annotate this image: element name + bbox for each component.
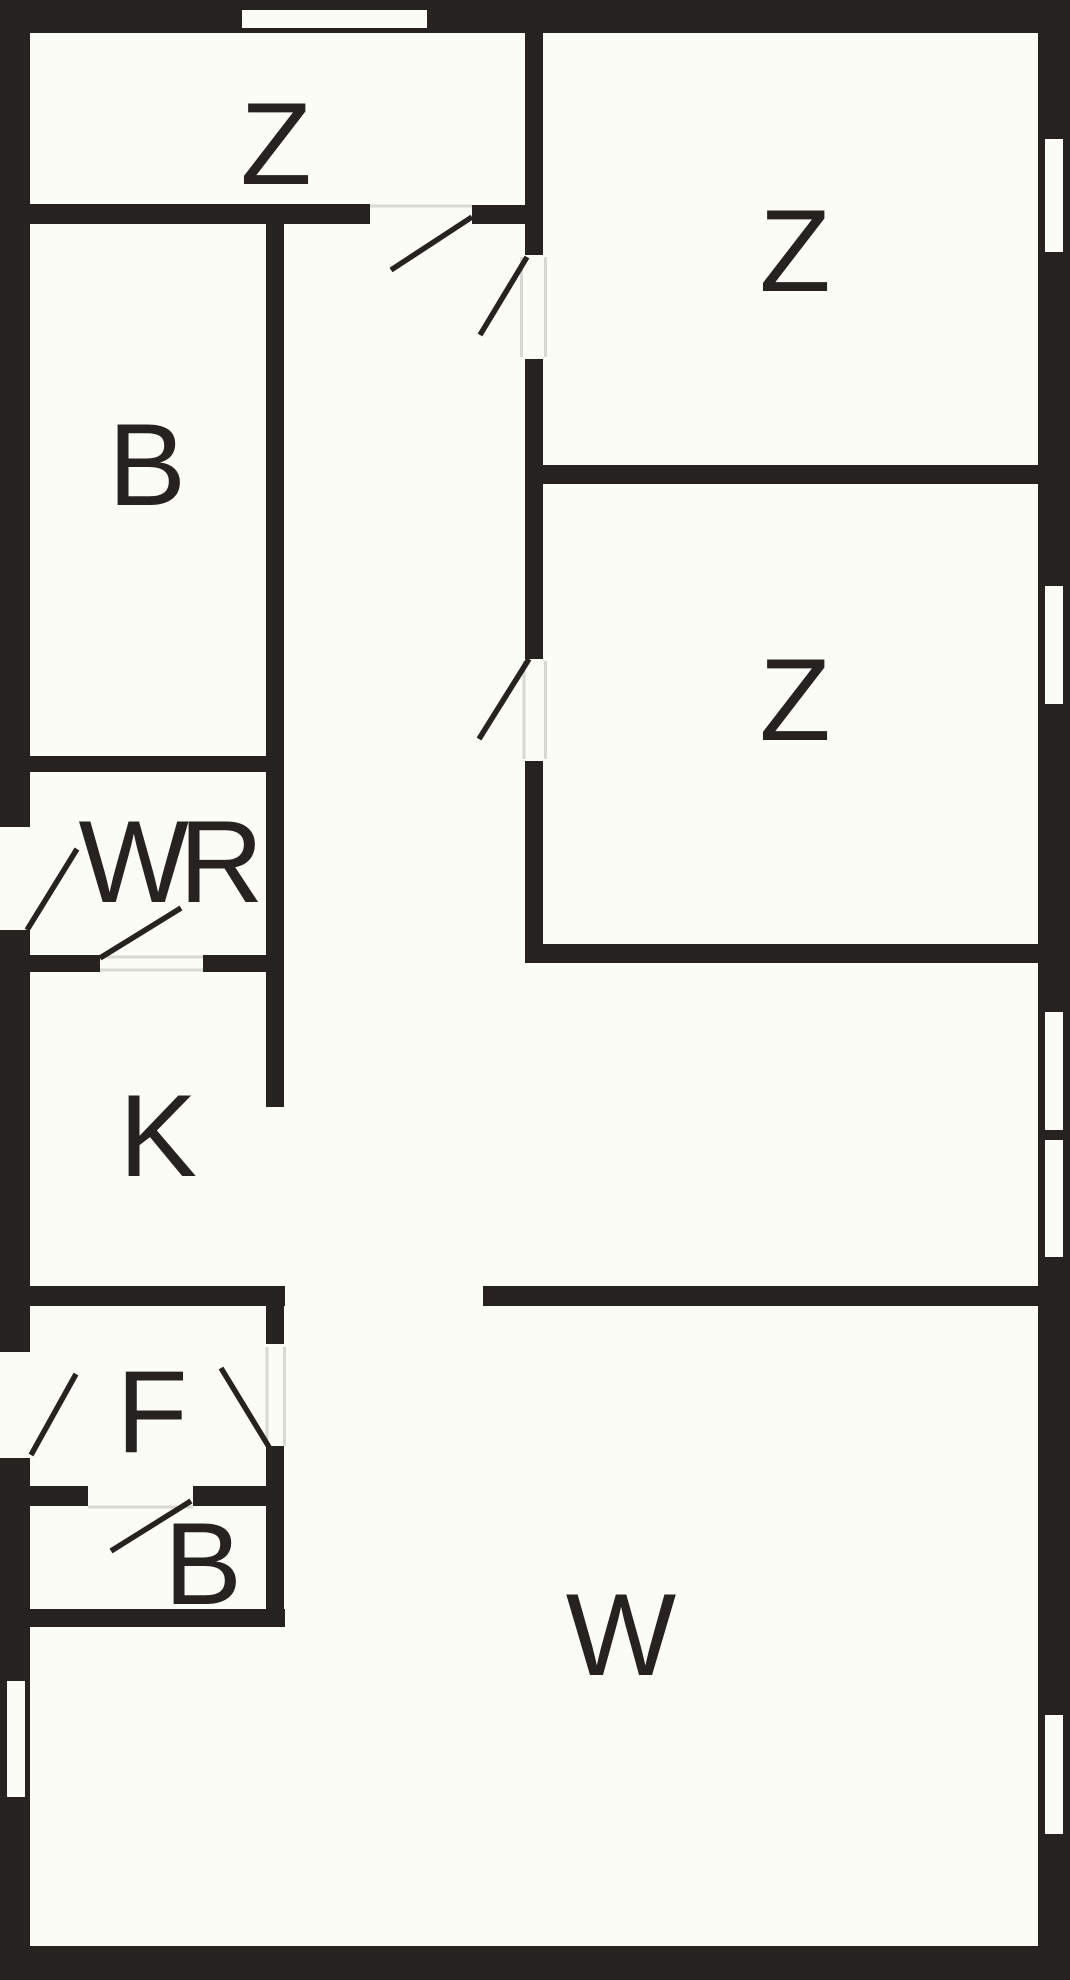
svg-text:K: K xyxy=(119,1070,197,1201)
svg-text:F: F xyxy=(116,1346,187,1477)
svg-text:WR: WR xyxy=(79,796,259,927)
svg-text:Z: Z xyxy=(759,634,830,765)
svg-text:B: B xyxy=(164,1498,242,1629)
svg-text:Z: Z xyxy=(240,78,311,209)
svg-text:Z: Z xyxy=(759,185,830,316)
svg-text:W: W xyxy=(566,1569,677,1700)
svg-text:B: B xyxy=(108,399,186,530)
